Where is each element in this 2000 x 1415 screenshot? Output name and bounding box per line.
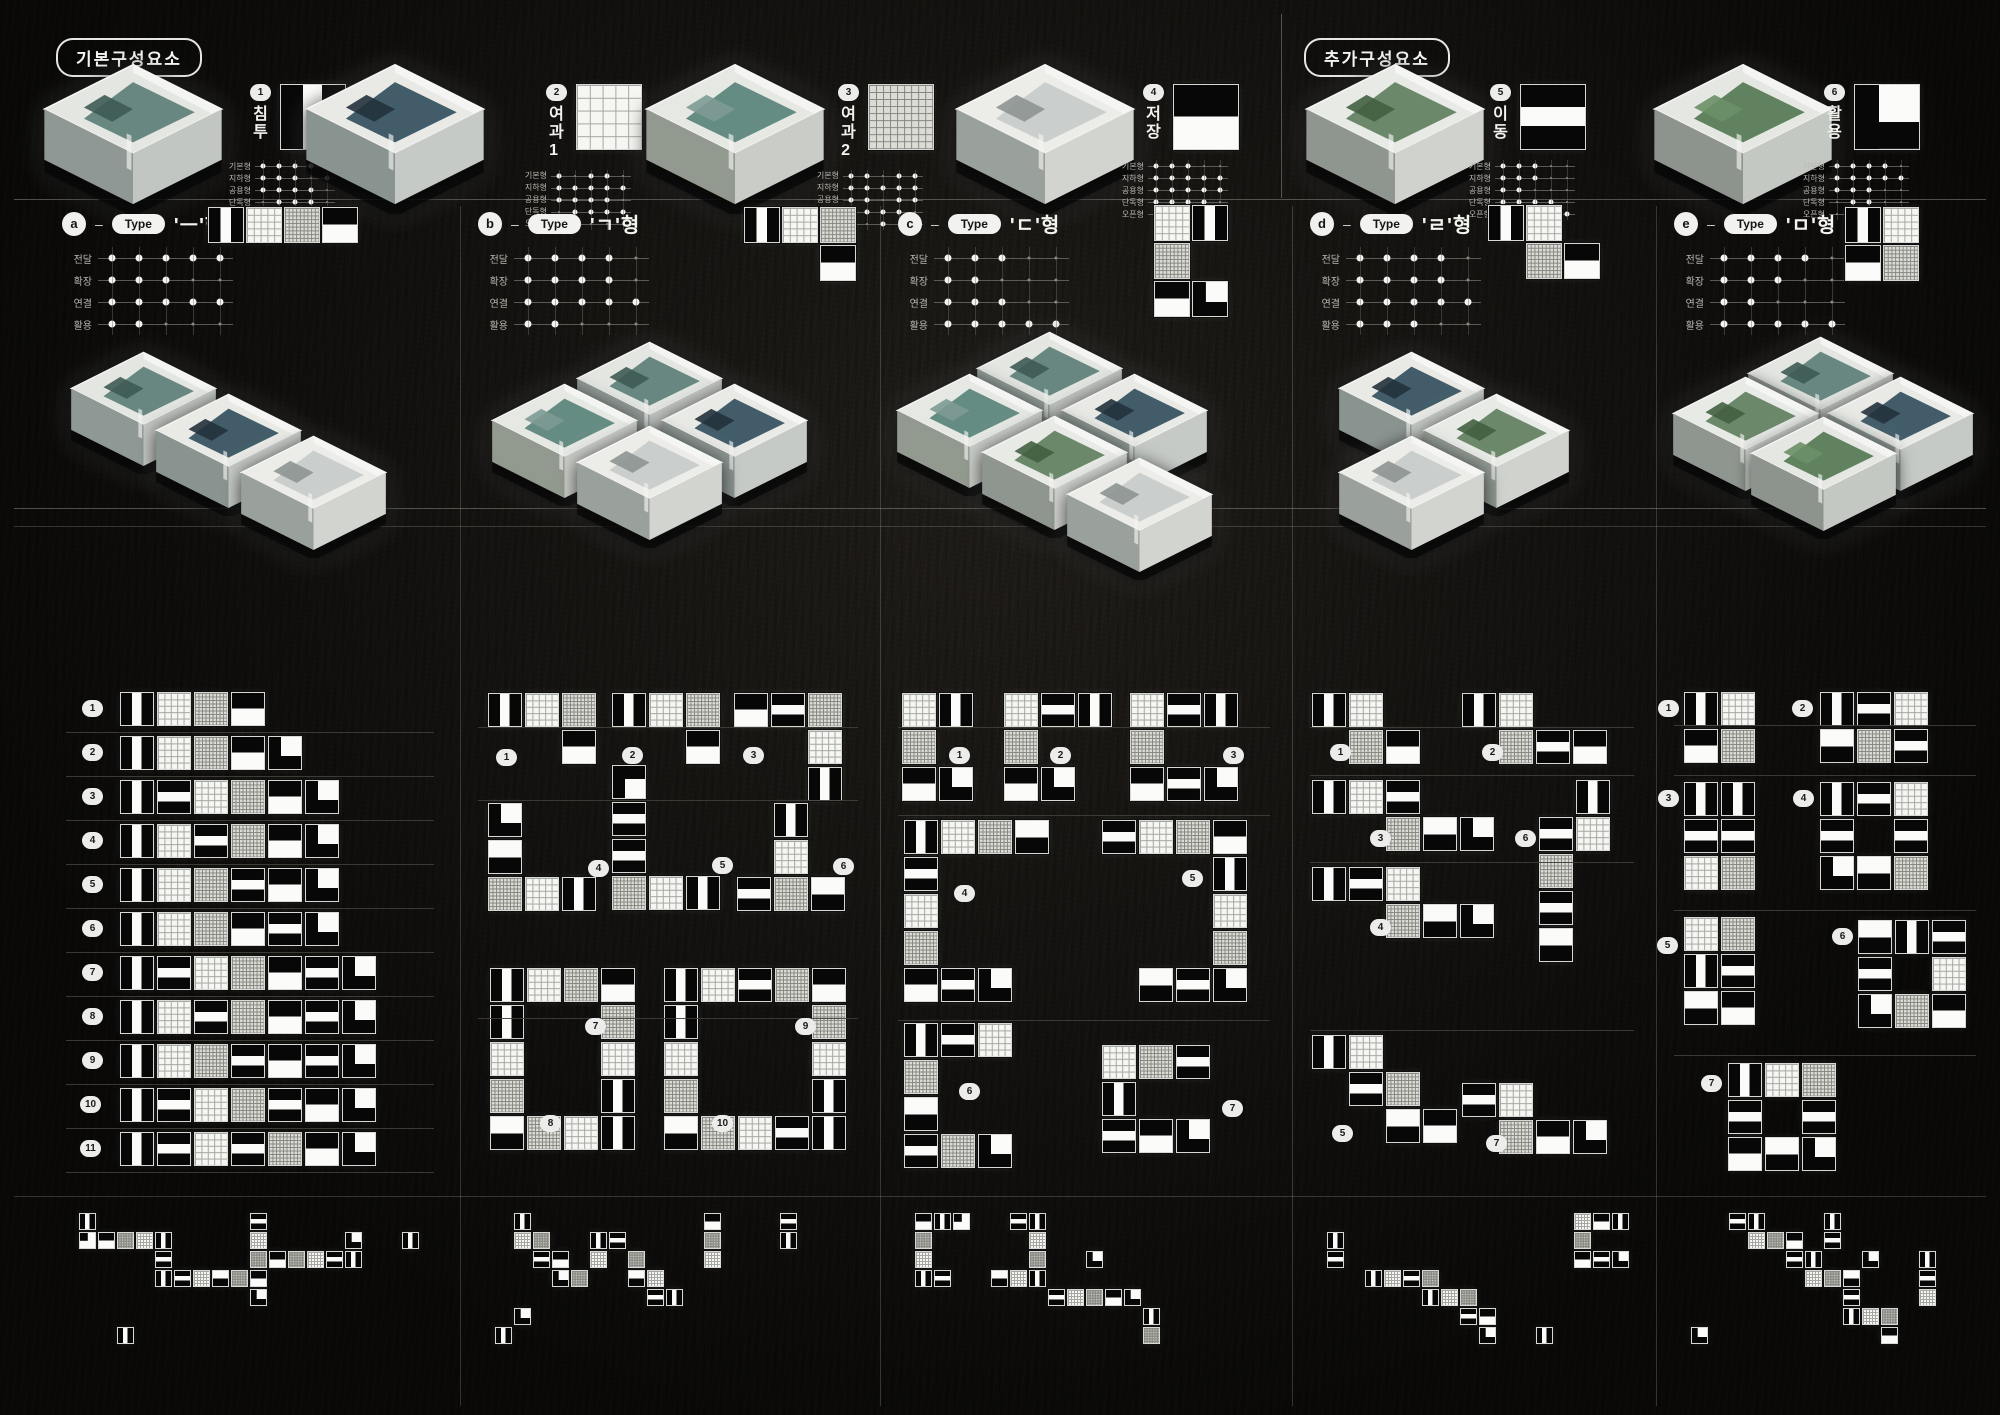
tile-movement (533, 1251, 550, 1268)
item-number-badge: 5 (1657, 937, 1678, 954)
matrix-dot (108, 277, 115, 284)
tile-filtration-1 (564, 1116, 598, 1150)
tile-storage (1721, 991, 1755, 1025)
matrix-dot (524, 299, 531, 306)
section-separator (1674, 775, 1976, 776)
tile-movement (157, 1088, 191, 1122)
matrix-dot (1517, 188, 1522, 193)
matrix-dot (621, 185, 626, 190)
tile-filtration-1 (250, 1232, 267, 1249)
component-dot-row-label: 기본형 (1464, 161, 1491, 172)
tile-movement (1593, 1251, 1610, 1268)
tile-utilization (1124, 1289, 1141, 1306)
matrix-dot (589, 173, 594, 178)
matrix-dot (1851, 188, 1856, 193)
item-number-badge: 11 (80, 1140, 101, 1157)
type-isometric-composite (472, 317, 868, 689)
matrix-dot (261, 188, 266, 193)
tile-storage (820, 245, 856, 281)
tile-movement (1010, 1213, 1027, 1230)
type-pill: Type (948, 214, 1001, 234)
tile-filtration-2 (904, 931, 938, 965)
component-dot-row-label: 지하형 (812, 182, 839, 193)
type-letter-badge: a (62, 212, 86, 236)
component-number-badge: 2 (546, 84, 567, 101)
matrix-dot (1202, 176, 1207, 181)
tile-storage (1213, 820, 1247, 854)
tile-filtration-2 (820, 207, 856, 243)
tile-infiltration (1684, 954, 1718, 988)
tile-movement (268, 912, 302, 946)
matrix-dot (1774, 277, 1781, 284)
tile-filtration-2 (1883, 245, 1919, 281)
tile-infiltration (1612, 1213, 1629, 1230)
isometric-module-graphic (572, 421, 727, 548)
tile-filtration-1 (1684, 917, 1718, 951)
tile-storage-flipped (1015, 820, 1049, 854)
tile-utilization (342, 1132, 376, 1166)
tile-filtration-2 (978, 820, 1012, 854)
item-number-badge: 9 (795, 1018, 816, 1035)
matrix-dot (1900, 189, 1902, 191)
tile-movement (194, 824, 228, 858)
tile-movement (305, 1044, 339, 1078)
tile-movement (194, 1000, 228, 1034)
tile-storage-flipped (811, 877, 845, 911)
section-separator (478, 800, 858, 801)
matrix-dot (1054, 257, 1057, 260)
component-dot-row-label: 공용형 (1464, 185, 1491, 196)
tile-filtration-2 (704, 1232, 721, 1249)
tile-filtration-2 (1539, 854, 1573, 888)
matrix-dot (1830, 257, 1833, 260)
matrix-dot (1747, 255, 1754, 262)
tile-infiltration (904, 820, 938, 854)
matrix-dot (882, 175, 884, 177)
tile-infiltration (1312, 693, 1346, 727)
tile-filtration-2 (1895, 994, 1929, 1028)
item-number-badge: 3 (1370, 830, 1391, 847)
isometric-module-graphic (1334, 431, 1489, 558)
tile-movement (1167, 767, 1201, 801)
matrix-dot (1836, 201, 1838, 203)
tile-filtration-1 (1130, 693, 1164, 727)
tile-filtration-1 (649, 693, 683, 727)
item-number-badge: 4 (588, 860, 609, 877)
item-number-badge: 6 (1832, 928, 1853, 945)
tile-filtration-2 (1802, 1063, 1836, 1097)
tile-filtration-1 (774, 840, 808, 874)
matrix-dot (1466, 279, 1469, 282)
tile-filtration-2 (533, 1232, 550, 1249)
tile-filtration-1 (157, 692, 191, 726)
tile-infiltration (939, 693, 973, 727)
tile-storage (1786, 1232, 1803, 1249)
tile-utilization (1854, 84, 1920, 150)
tile-filtration-1 (1684, 856, 1718, 890)
matrix-dot (1851, 200, 1856, 205)
tile-utilization (342, 1000, 376, 1034)
matrix-dot (1202, 188, 1207, 193)
tile-storage-flipped (664, 1116, 698, 1150)
item-number-badge: 6 (1515, 830, 1536, 847)
tile-filtration-1 (157, 736, 191, 770)
component-dot-row-label: 기본형 (520, 170, 547, 181)
matrix-dot (578, 299, 585, 306)
type-column-c: c–Type'ㄷ'형전달확장연결활용 (892, 205, 1280, 1410)
item-number-badge: 1 (949, 747, 970, 764)
matrix-dot (1410, 255, 1417, 262)
matrix-dot (1203, 165, 1205, 167)
matrix-dot (578, 255, 585, 262)
tile-filtration-2 (941, 1134, 975, 1168)
matrix-dot (261, 164, 266, 169)
matrix-dot (634, 257, 637, 260)
matrix-dot (1517, 176, 1522, 181)
tile-filtration-1 (157, 868, 191, 902)
tile-storage (734, 693, 768, 727)
type-column-a: a–Type'ㅡ'형전달확장연결활용 1234567891011 (56, 205, 448, 1410)
matrix-dot (1835, 188, 1840, 193)
tile-movement (609, 1232, 626, 1249)
tile-filtration-2 (612, 876, 646, 910)
matrix-dot (1437, 277, 1444, 284)
tile-storage (98, 1232, 115, 1249)
item-number-badge: 7 (1486, 1135, 1507, 1152)
tile-storage (268, 780, 302, 814)
tile-storage (231, 692, 265, 726)
tile-infiltration (1365, 1270, 1382, 1287)
tile-filtration-1 (664, 1042, 698, 1076)
tile-infiltration (1919, 1251, 1936, 1268)
matrix-dot (277, 200, 282, 205)
component-dot-row-label: 공용형 (224, 185, 251, 196)
tile-filtration-1 (490, 1042, 524, 1076)
column-divider-ab (460, 206, 461, 1406)
matrix-dot (191, 279, 194, 282)
tile-utilization (345, 1232, 362, 1249)
tile-utilization (268, 736, 302, 770)
tile-movement (1786, 1251, 1803, 1268)
type-dot-row-label: 확장 (1670, 273, 1704, 288)
tile-movement (157, 1132, 191, 1166)
tile-infiltration (402, 1232, 419, 1249)
type-title: 'ㅁ'형 (1786, 209, 1836, 238)
item-number-badge: 4 (954, 885, 975, 902)
matrix-dot (1566, 201, 1568, 203)
isometric-module (1334, 431, 1489, 563)
component-dot-row-label: 공용형 (812, 194, 839, 205)
tile-movement (738, 968, 772, 1002)
tile-storage-flipped (1820, 729, 1854, 763)
tile-filtration-2 (1767, 1232, 1784, 1249)
tile-filtration-1 (1067, 1289, 1084, 1306)
component-dot-row-label: 공용형 (1798, 185, 1825, 196)
tile-filtration-1 (194, 956, 228, 990)
tile-utilization-top (612, 765, 646, 799)
matrix-dot (1383, 277, 1390, 284)
tile-filtration-1 (704, 1251, 721, 1268)
tile-movement (1919, 1270, 1936, 1287)
tile-storage (1105, 1289, 1122, 1306)
tile-storage (1130, 767, 1164, 801)
tile-filtration-1 (1213, 894, 1247, 928)
component-dot-row-label: 지하형 (1117, 173, 1144, 184)
type-isometric-composite (56, 317, 448, 689)
tile-filtration-2 (868, 84, 934, 150)
matrix-dot (1900, 201, 1902, 203)
isometric-module-graphic (640, 58, 830, 214)
top-section-divider (1281, 14, 1282, 198)
tile-utilization (1691, 1327, 1708, 1344)
isometric-module-graphic (236, 431, 391, 558)
item-number-badge: 3 (82, 788, 103, 805)
tile-utilization (1479, 1327, 1496, 1344)
type-header-e: e–Type'ㅁ'형 (1674, 209, 1836, 238)
tile-filtration-2 (562, 693, 596, 727)
tile-filtration-1 (782, 207, 818, 243)
component-dot-row-label: 기본형 (224, 161, 251, 172)
tile-movement (250, 1213, 267, 1230)
component-dot-row-label: 지하형 (1798, 173, 1825, 184)
component-dot-row-label: 기본형 (812, 170, 839, 181)
matrix-dot (1219, 201, 1221, 203)
tile-filtration-2 (1139, 1045, 1173, 1079)
tile-movement (174, 1270, 191, 1287)
tile-storage-flipped (1423, 904, 1457, 938)
matrix-dot (605, 255, 612, 262)
matrix-dot (1851, 176, 1856, 181)
matrix-dot (1867, 200, 1872, 205)
tile-movement (1539, 817, 1573, 851)
matrix-dot (1883, 176, 1888, 181)
tile-filtration-2 (1422, 1270, 1439, 1287)
tile-utilization (1460, 904, 1494, 938)
matrix-dot (1027, 279, 1030, 282)
section-separator (1674, 725, 1976, 726)
matrix-dot (135, 299, 142, 306)
tile-filtration-2 (1824, 1270, 1841, 1287)
tile-filtration-1 (246, 207, 282, 243)
component-name: 활용 (1827, 106, 1842, 142)
matrix-dot (1835, 164, 1840, 169)
type-letter-badge: b (478, 212, 502, 236)
tile-storage-flipped (1765, 1137, 1799, 1171)
tile-filtration-2 (904, 1060, 938, 1094)
tile-infiltration (117, 1327, 134, 1344)
matrix-dot (135, 255, 142, 262)
tile-filtration-1 (194, 1088, 228, 1122)
tile-utilization (514, 1308, 531, 1325)
tile-filtration-1 (1574, 1213, 1591, 1230)
tile-utilization (1820, 856, 1854, 890)
tile-infiltration (1536, 1327, 1553, 1344)
matrix-dot (865, 185, 870, 190)
tile-filtration-1 (649, 876, 683, 910)
matrix-dot (293, 188, 298, 193)
tile-storage-flipped (991, 1270, 1008, 1287)
component-dot-row-label: 기본형 (1117, 161, 1144, 172)
tile-storage (1593, 1213, 1610, 1230)
tile-movement (1176, 1045, 1210, 1079)
tile-infiltration (612, 693, 646, 727)
tile-infiltration (120, 736, 154, 770)
matrix-dot (1774, 255, 1781, 262)
matrix-dot (998, 255, 1005, 262)
tile-infiltration (120, 1088, 154, 1122)
tile-movement (612, 802, 646, 836)
tile-infiltration (686, 876, 720, 910)
tile-filtration-2 (812, 1005, 846, 1039)
row-separator (66, 1128, 434, 1129)
tile-filtration-2 (1721, 729, 1755, 763)
item-number-badge: 8 (82, 1008, 103, 1025)
tile-storage (1574, 1251, 1591, 1268)
tile-storage (915, 1213, 932, 1230)
matrix-dot (1803, 279, 1806, 282)
tile-filtration-1 (1349, 693, 1383, 727)
matrix-dot (1170, 188, 1175, 193)
type-column-d: d–Type'ㄹ'형전달확장연결활용 1236457 (1304, 205, 1644, 1410)
tile-filtration-2 (628, 1251, 645, 1268)
tile-storage (1423, 1109, 1457, 1143)
tile-infiltration (345, 1251, 362, 1268)
matrix-dot (1186, 188, 1191, 193)
tile-filtration-1 (1004, 693, 1038, 727)
tile-storage (1154, 281, 1190, 317)
matrix-dot (897, 173, 902, 178)
item-number-badge: 5 (1182, 870, 1203, 887)
tile-filtration-1 (1441, 1289, 1458, 1306)
tile-movement (1349, 867, 1383, 901)
item-number-badge: 7 (1701, 1075, 1722, 1092)
tile-movement (305, 956, 339, 990)
tile-filtration-1 (1499, 1083, 1533, 1117)
tile-movement (1932, 920, 1966, 954)
tile-infiltration (120, 1132, 154, 1166)
matrix-dot (1186, 200, 1191, 205)
tile-filtration-1 (1894, 692, 1928, 726)
matrix-dot (293, 200, 298, 205)
type-dot-row-label: 전달 (894, 251, 928, 266)
tile-infiltration (1029, 1213, 1046, 1230)
tile-movement (1729, 1213, 1746, 1230)
type-dash: – (1343, 216, 1351, 232)
matrix-dot (1534, 189, 1536, 191)
section-separator (1310, 1030, 1634, 1031)
section-separator (1310, 727, 1634, 728)
tile-storage (902, 767, 936, 801)
matrix-dot (189, 299, 196, 306)
item-number-badge: 5 (1332, 1125, 1353, 1142)
matrix-dot (578, 277, 585, 284)
matrix-dot (849, 197, 854, 202)
matrix-dot (277, 176, 282, 181)
row-separator (66, 1040, 434, 1041)
tile-storage (1573, 730, 1607, 764)
matrix-dot (1154, 164, 1159, 169)
tile-utilization (1192, 281, 1228, 317)
type-title: 'ㄷ'형 (1010, 209, 1060, 238)
matrix-dot (557, 173, 562, 178)
type-isometric-composite (892, 317, 1280, 689)
tile-utilization (305, 780, 339, 814)
tile-infiltration (1422, 1289, 1439, 1306)
section-separator (898, 815, 1270, 816)
tile-filtration-1 (601, 1042, 635, 1076)
tile-utilization (342, 1088, 376, 1122)
tile-infiltration (664, 1005, 698, 1039)
matrix-dot (1851, 164, 1856, 169)
type-header-a: a–Type'ㅡ'형 (62, 209, 224, 238)
matrix-dot (1533, 200, 1538, 205)
section-separator (898, 727, 1270, 728)
matrix-dot (557, 185, 562, 190)
matrix-dot (1154, 176, 1159, 181)
tile-filtration-1 (1139, 820, 1173, 854)
matrix-dot (1356, 277, 1363, 284)
matrix-dot (1835, 176, 1840, 181)
type-pill: Type (528, 214, 581, 234)
tile-infiltration (120, 1000, 154, 1034)
tile-storage (1004, 767, 1038, 801)
matrix-dot (1883, 164, 1888, 169)
tile-movement (775, 1116, 809, 1150)
tile-filtration-1 (136, 1232, 153, 1249)
tile-infiltration (120, 780, 154, 814)
matrix-dot (216, 255, 223, 262)
section-separator (1674, 1055, 1976, 1056)
tile-infiltration (1213, 857, 1247, 891)
tile-movement (231, 1044, 265, 1078)
component-thumbnail-filtration-2 (640, 58, 830, 219)
tile-filtration-2 (231, 1088, 265, 1122)
matrix-dot (162, 277, 169, 284)
matrix-dot (622, 199, 624, 201)
matrix-dot (573, 185, 578, 190)
item-number-badge: 10 (712, 1115, 733, 1132)
matrix-dot (1437, 255, 1444, 262)
tile-utilization (1802, 1137, 1836, 1171)
type-letter-badge: e (1674, 212, 1698, 236)
tile-infiltration (1824, 1213, 1841, 1230)
tile-infiltration (490, 1005, 524, 1039)
tile-filtration-2 (488, 877, 522, 911)
tile-infiltration (1845, 207, 1881, 243)
matrix-dot (897, 185, 902, 190)
tile-filtration-1 (576, 84, 642, 150)
tile-infiltration (120, 1044, 154, 1078)
matrix-dot (1170, 200, 1175, 205)
type-dot-row-label: 연결 (58, 295, 92, 310)
matrix-dot (573, 197, 578, 202)
tile-movement (231, 868, 265, 902)
tile-storage-flipped (628, 1270, 645, 1287)
tile-filtration-1 (1349, 1035, 1383, 1069)
tile-infiltration (1843, 1308, 1860, 1325)
matrix-dot (1867, 188, 1872, 193)
tile-storage (1845, 245, 1881, 281)
tile-movement (1176, 968, 1210, 1002)
item-number-badge: 6 (833, 858, 854, 875)
tile-utilization (978, 1134, 1012, 1168)
matrix-dot (1383, 255, 1390, 262)
tile-infiltration (1102, 1082, 1136, 1116)
tile-movement (1536, 730, 1570, 764)
tile-filtration-1 (525, 693, 559, 727)
tile-filtration-1 (527, 968, 561, 1002)
matrix-dot (1356, 255, 1363, 262)
